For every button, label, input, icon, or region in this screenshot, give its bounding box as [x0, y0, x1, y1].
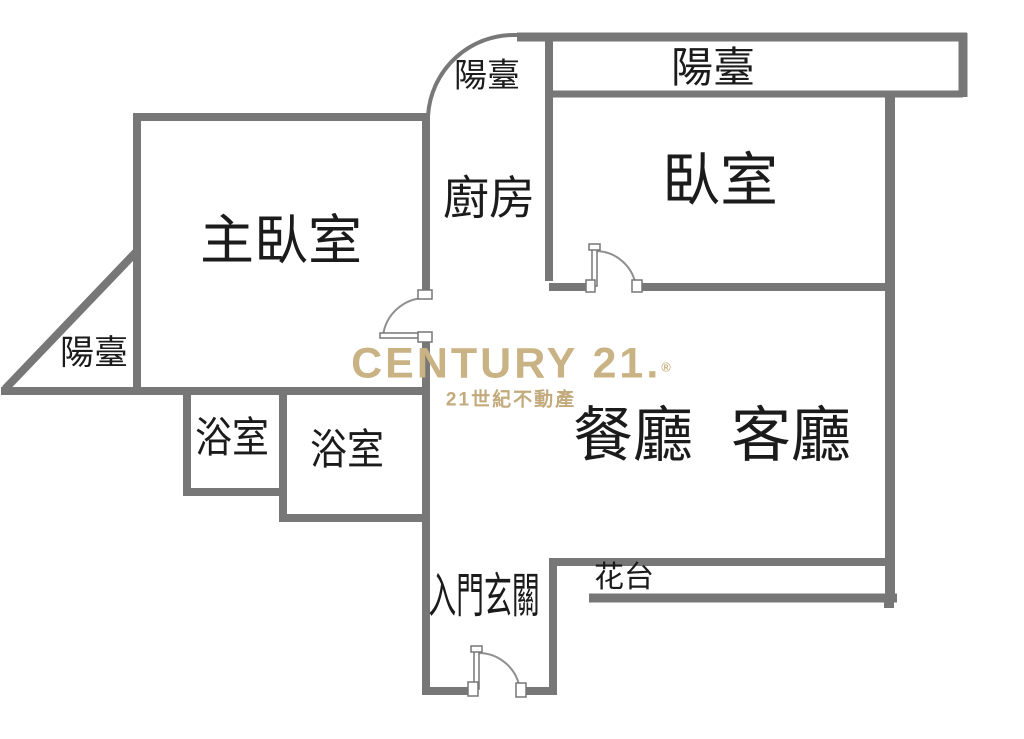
room-label-bedroom: 臥室 — [662, 152, 778, 210]
room-label-balcony-kitchen: 陽臺 — [454, 59, 520, 92]
room-label-bathroom-1: 浴室 — [195, 417, 269, 459]
bedroom-door-jamb-left — [586, 280, 595, 292]
master-door-jamb-top — [418, 290, 432, 299]
room-label-balcony-bedroom: 陽臺 — [671, 47, 755, 89]
doors — [380, 244, 642, 697]
room-label-balcony-master: 陽臺 — [60, 336, 128, 370]
room-label-bathroom-2: 浴室 — [310, 429, 384, 471]
room-label-dining: 餐廳 — [573, 406, 693, 466]
room-label-dining-living: 餐廳客廳 — [573, 406, 851, 466]
bedroom-door-jamb-right — [632, 280, 642, 292]
room-label-kitchen: 廚房 — [443, 175, 535, 221]
room-label-foyer: 入門玄關 — [428, 573, 539, 621]
century21-watermark: CENTURY 21.® — [351, 343, 671, 386]
century21-brand-text: CENTURY 21. — [351, 340, 661, 388]
registered-trademark-icon: ® — [661, 360, 671, 375]
entrance-door-jamb-left — [468, 682, 478, 696]
entrance-door-jamb-right — [516, 683, 526, 697]
master-door-swing-arc — [383, 298, 426, 336]
century21-tagline: 21世紀不動產 — [446, 391, 576, 410]
entrance-door-swing-arc — [477, 653, 520, 690]
floorplan: CENTURY 21.® 21世紀不動產 主臥室 廚房 陽臺 陽臺 臥室 陽臺 … — [0, 0, 1024, 739]
bedroom-door-cap — [589, 244, 600, 250]
entrance-door-cap — [471, 646, 482, 652]
bedroom-door-swing-arc — [595, 251, 636, 287]
room-label-planter: 花台 — [594, 563, 654, 593]
room-label-living: 客廳 — [731, 406, 851, 466]
room-label-master-bedroom: 主臥室 — [200, 214, 362, 268]
